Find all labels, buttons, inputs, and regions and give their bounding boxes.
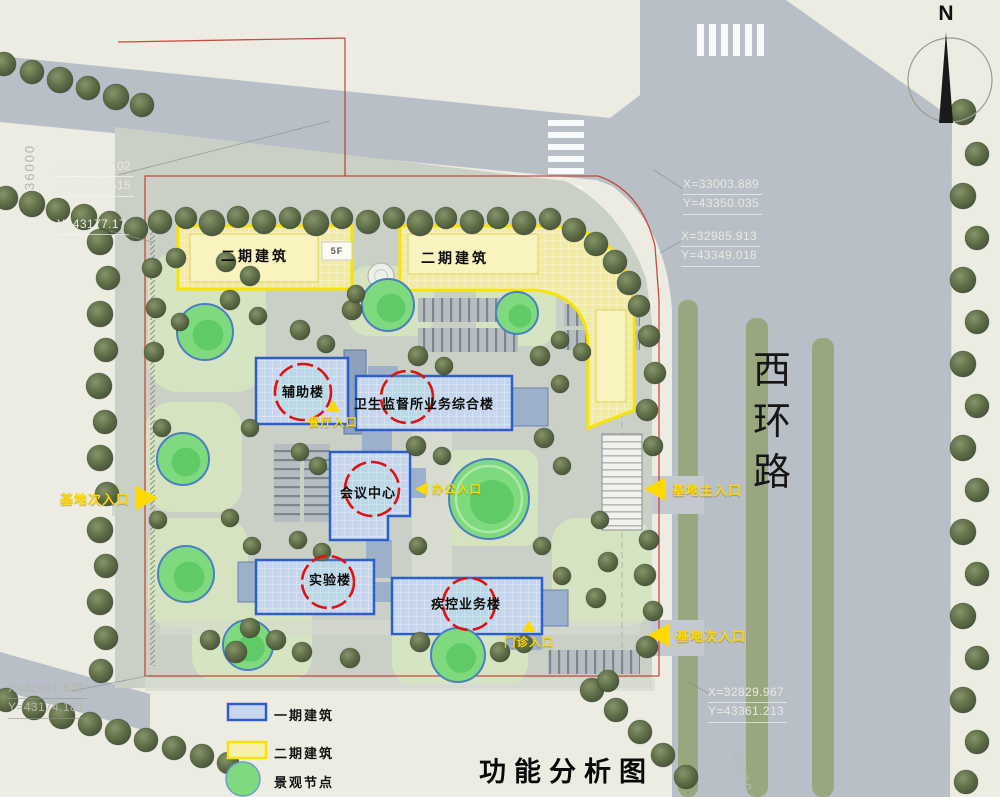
- tree: [220, 290, 240, 310]
- tree: [279, 207, 301, 229]
- tree: [965, 310, 989, 334]
- tree: [290, 320, 310, 340]
- tree: [292, 642, 312, 662]
- tree: [628, 295, 650, 317]
- legend-label-phase2: 二期建筑: [274, 743, 334, 762]
- tree: [89, 659, 113, 683]
- tree: [144, 342, 164, 362]
- tree: [551, 375, 569, 393]
- tree: [347, 285, 365, 303]
- tree: [950, 435, 976, 461]
- tree: [243, 537, 261, 555]
- tree: [409, 537, 427, 555]
- tree: [965, 142, 989, 166]
- tree: [87, 301, 113, 327]
- west-fence: [150, 230, 155, 666]
- tree: [965, 478, 989, 502]
- tree: [950, 603, 976, 629]
- arrow-left-icon: [648, 623, 670, 647]
- tree: [643, 601, 663, 621]
- entrance-east-main: 基地主入口: [644, 477, 742, 501]
- tree: [573, 343, 591, 361]
- tree: [586, 588, 606, 608]
- tree: [142, 258, 162, 278]
- tree: [166, 248, 186, 268]
- tree: [146, 298, 166, 318]
- tree: [19, 191, 45, 217]
- tree: [134, 728, 158, 752]
- tree: [76, 76, 100, 100]
- tree: [433, 447, 451, 465]
- tree: [950, 267, 976, 293]
- tree: [598, 552, 618, 572]
- entrance-west-secondary: 基地次入口: [60, 486, 158, 510]
- entrance-east-secondary: 基地次入口: [648, 623, 746, 647]
- tree: [340, 648, 360, 668]
- legend-label-phase1: 一期建筑: [274, 705, 334, 724]
- tree: [553, 567, 571, 585]
- tree: [597, 670, 619, 692]
- compass-needle: [939, 32, 953, 123]
- tree: [47, 67, 73, 93]
- tree: [950, 99, 976, 125]
- laboratory-label: 实验楼: [309, 570, 351, 589]
- tree: [591, 511, 609, 529]
- tree: [604, 698, 628, 722]
- tree: [530, 346, 550, 366]
- tree: [674, 765, 698, 789]
- tree: [435, 357, 453, 375]
- tree: [240, 618, 260, 638]
- tree: [435, 207, 457, 229]
- conference-center-label: 会议中心: [340, 483, 396, 502]
- tree: [309, 457, 327, 475]
- tree: [190, 744, 214, 768]
- tree: [221, 509, 239, 527]
- tree: [162, 736, 186, 760]
- cdc-building-label: 疾控业务楼: [431, 594, 501, 613]
- tree: [534, 428, 554, 448]
- tree: [200, 630, 220, 650]
- arrow-up-icon: [522, 620, 536, 632]
- tree: [20, 60, 44, 84]
- tree: [553, 457, 571, 475]
- tree: [950, 519, 976, 545]
- arrow-left-icon: [415, 482, 428, 496]
- tree: [199, 210, 225, 236]
- tree: [638, 325, 660, 347]
- coordinate-label-nw2: Y=43177.17: [57, 216, 129, 235]
- road-name-xihuanlu: 西 环 路: [748, 346, 796, 499]
- tree: [249, 307, 267, 325]
- tree: [643, 436, 663, 456]
- tree: [950, 351, 976, 377]
- tree: [153, 419, 171, 437]
- tree: [406, 436, 426, 456]
- tree: [634, 564, 656, 586]
- tree: [303, 210, 329, 236]
- legend-label-node: 景观节点: [274, 772, 334, 791]
- legend-swatch-phase2: [228, 742, 266, 758]
- tree: [383, 207, 405, 229]
- tree: [266, 630, 286, 650]
- legend-swatch-phase1: [228, 704, 266, 720]
- tree: [291, 443, 309, 461]
- tree: [965, 646, 989, 670]
- tree: [644, 362, 666, 384]
- tree: [175, 207, 197, 229]
- tree: [562, 218, 586, 242]
- tree: [103, 84, 129, 110]
- tree: [149, 511, 167, 529]
- tree: [603, 250, 627, 274]
- arrow-up-icon: [326, 400, 340, 412]
- arrow-left-icon: [644, 477, 666, 501]
- health-supervision-label: 卫生监督所业务综合楼: [354, 394, 494, 413]
- tree: [148, 210, 172, 234]
- tree: [94, 338, 118, 362]
- tree: [331, 207, 353, 229]
- tree: [130, 93, 154, 117]
- coordinate-label-ne1: X=33003.889Y=43350.035: [683, 176, 762, 215]
- tree: [636, 399, 658, 421]
- tree: [651, 743, 675, 767]
- tree: [227, 206, 249, 228]
- floor-tag: 5F: [331, 246, 344, 256]
- tree: [241, 419, 259, 437]
- tree: [551, 331, 569, 349]
- tree: [410, 632, 430, 652]
- phase2-label-right: 二期建筑: [421, 248, 489, 268]
- page-title: 功能分析图: [479, 750, 654, 789]
- tree: [584, 232, 608, 256]
- tree: [487, 207, 509, 229]
- tree: [533, 537, 551, 555]
- tree: [317, 335, 335, 353]
- tree: [87, 589, 113, 615]
- tree: [105, 719, 131, 745]
- compass: [908, 32, 992, 123]
- tree: [407, 210, 433, 236]
- site-plan-canvas: N X=33010.102Y=43177.515 Y=43177.17 X=33…: [0, 0, 1000, 797]
- tree: [289, 531, 307, 549]
- tree: [93, 410, 117, 434]
- tree: [965, 226, 989, 250]
- coordinate-label-sw: X=32831.522Y=43174.181: [8, 680, 87, 719]
- arrow-right-icon: [136, 486, 158, 510]
- tree: [356, 210, 380, 234]
- compass-north-label: N: [938, 2, 953, 26]
- tree: [252, 210, 276, 234]
- site-plan-drawing: [0, 0, 1000, 797]
- tree: [628, 720, 652, 744]
- tree: [954, 770, 978, 794]
- tree: [225, 641, 247, 663]
- dimension-west: 36000: [22, 144, 37, 190]
- entrance-clinic: 门诊入口: [504, 620, 554, 650]
- tree: [94, 626, 118, 650]
- coordinate-label-se: X=32829.967Y=43361.213: [708, 684, 787, 723]
- tree: [965, 562, 989, 586]
- tree: [950, 687, 976, 713]
- tree: [512, 211, 536, 235]
- coordinate-label-nw: X=33010.102Y=43177.515: [55, 158, 134, 197]
- tree: [342, 300, 362, 320]
- tree: [639, 530, 659, 550]
- tree: [96, 266, 120, 290]
- coordinate-label-ne2: X=32985.913Y=43349.018: [681, 228, 760, 267]
- legend-swatch-node: [226, 762, 260, 796]
- tree: [87, 517, 113, 543]
- tree: [408, 346, 428, 366]
- tree: [87, 445, 113, 471]
- auxiliary-building-label: 辅助楼: [282, 382, 324, 401]
- tree: [94, 554, 118, 578]
- entrance-canteen: 餐厅入口: [308, 400, 358, 430]
- tree: [965, 730, 989, 754]
- tree: [240, 266, 260, 286]
- phase2-label-left: 二期建筑: [221, 246, 289, 266]
- entrance-office: 办公入口: [415, 481, 482, 497]
- tree: [86, 373, 112, 399]
- tree: [539, 208, 561, 230]
- tree: [460, 210, 484, 234]
- tree: [617, 271, 641, 295]
- tree: [0, 186, 18, 210]
- tree: [965, 394, 989, 418]
- tree: [171, 313, 189, 331]
- legend-swatches: [226, 704, 266, 796]
- tree: [950, 183, 976, 209]
